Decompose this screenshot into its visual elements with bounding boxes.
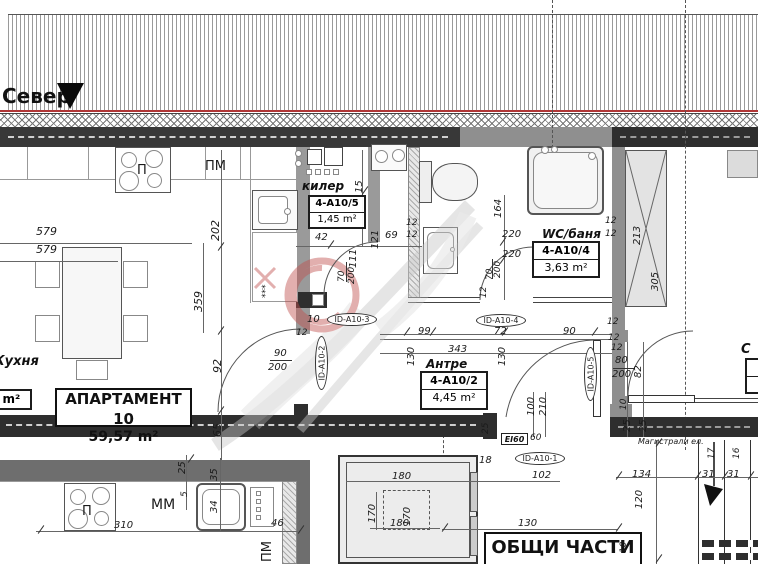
dimension-label: 220 xyxy=(502,230,521,240)
sink-bowl xyxy=(202,489,240,525)
dimension-label: 12 xyxy=(406,231,417,240)
room-id: 4-А10/4 xyxy=(534,243,598,260)
wall xyxy=(612,147,625,437)
door-leaf xyxy=(628,395,695,403)
faucet xyxy=(284,208,291,215)
slab xyxy=(727,150,758,178)
faucet xyxy=(450,247,455,252)
washer-symbol xyxy=(324,147,343,166)
burner xyxy=(92,487,110,505)
counter-divider xyxy=(27,147,28,180)
chair xyxy=(76,360,108,380)
basin-bowl xyxy=(392,149,405,162)
dim-line xyxy=(470,481,560,482)
apartment-title: АПАРТАМЕНТ 10 xyxy=(57,390,190,429)
dimension-label: 120 xyxy=(635,490,645,509)
drain xyxy=(588,152,596,160)
wall xyxy=(297,460,310,564)
counter-divider xyxy=(240,147,241,180)
dim-line xyxy=(656,440,657,564)
dim-line xyxy=(296,246,422,247)
dim-line xyxy=(203,243,204,333)
dimension-label: 343 xyxy=(448,345,467,355)
wall xyxy=(282,481,297,564)
dimension-label: 170 xyxy=(368,504,378,523)
dimension-label: 15 xyxy=(355,180,365,193)
dimension-label: 200 xyxy=(268,363,287,373)
basin-bowl xyxy=(375,150,388,163)
dimension-label: 12 xyxy=(611,344,622,353)
washer-symbol xyxy=(307,149,322,165)
appliance-label: П xyxy=(82,505,92,518)
common-area-title: ОБЩИ ЧАСТИ xyxy=(486,534,640,561)
dimension-label: 16 xyxy=(733,448,742,459)
dimension-label: 10 xyxy=(620,542,629,553)
room-id: 4-А10/5 xyxy=(310,197,364,213)
knob xyxy=(295,150,302,157)
toilet-bowl xyxy=(432,163,478,201)
dimension-label: 164 xyxy=(494,199,504,218)
counter-divider xyxy=(88,147,89,180)
appliance-label: ПМ xyxy=(261,541,274,562)
dim-tick xyxy=(38,525,45,534)
mixer xyxy=(551,146,558,153)
dimension-label: 69 xyxy=(385,231,398,241)
dimension-label: 111 xyxy=(349,249,359,268)
door-id-tag: ID-А10-2 xyxy=(315,336,328,390)
wall xyxy=(0,460,300,481)
dimension-label: 180 xyxy=(392,472,411,482)
dim-line xyxy=(0,243,192,244)
room-name-kiler: килер xyxy=(302,180,344,192)
dimension-label: 17 xyxy=(708,448,717,459)
red-reference-line xyxy=(0,110,758,112)
dim-line xyxy=(0,261,118,262)
dimension-label: 82 xyxy=(634,365,644,378)
dimension-label: 60 xyxy=(530,434,541,443)
dining-table xyxy=(62,247,122,359)
stair-tread xyxy=(702,540,758,547)
burner xyxy=(119,171,139,191)
room-box-antre: 4-А10/2 4,45 m² xyxy=(420,371,488,410)
shower-inner xyxy=(533,152,598,209)
wall xyxy=(695,398,758,403)
dimension-label: 213 xyxy=(633,226,643,245)
shelf-dot xyxy=(324,169,330,175)
dimension-label: 134 xyxy=(632,470,651,480)
dimension-label: 130 xyxy=(407,347,417,366)
dimension-label: 35 xyxy=(210,468,220,481)
dimension-label: 25 xyxy=(178,461,188,474)
dimension-label: 210 xyxy=(539,397,549,416)
north-label: Север xyxy=(2,86,71,106)
counter-divider xyxy=(250,147,251,303)
dimension-label: 130 xyxy=(518,519,537,529)
dimension-label: 12 xyxy=(605,217,616,226)
toilet-cistern xyxy=(419,161,432,203)
dimension-label: 100 xyxy=(527,397,537,416)
dimension-label: 90 xyxy=(563,327,576,337)
door-id-tag: ID-А10-3 xyxy=(327,313,377,326)
dimension-label: Магистрали ел. xyxy=(638,438,704,446)
shelf-dot xyxy=(256,499,261,504)
room-area: 1,45 m² xyxy=(310,213,364,228)
door-jamb xyxy=(312,294,324,306)
shelf-dot xyxy=(306,169,312,175)
dimension-label: 202 xyxy=(210,220,221,241)
dimension-label: 65 xyxy=(212,423,223,437)
cabinet-symbol xyxy=(252,232,298,302)
appliance-label: *** xyxy=(262,285,271,299)
dimension-label: 102 xyxy=(532,471,551,481)
dimension-label: 31 xyxy=(727,470,740,480)
dimension-label: 42 xyxy=(315,233,328,243)
dimension-label: 90 xyxy=(274,349,287,359)
dimension-label: 10 xyxy=(620,399,629,410)
door-id-tag: ID-А10-1 xyxy=(515,452,565,465)
dimension-label: 200 xyxy=(612,370,631,380)
room-name-antre: Антре xyxy=(426,358,467,370)
dimension-label: 310 xyxy=(114,521,133,531)
dimension-label: 12 xyxy=(296,329,307,338)
dimension-label: 25 xyxy=(482,423,491,434)
chair xyxy=(35,261,60,288)
counter-edge xyxy=(0,481,282,482)
dimension-label: 18 xyxy=(479,456,492,466)
dimension-label: 99 xyxy=(418,327,431,337)
burner xyxy=(147,173,162,188)
axis-line xyxy=(685,0,686,450)
dimension-label: 220 xyxy=(502,250,521,260)
dimension-label: 46 xyxy=(271,519,284,529)
axis-line xyxy=(552,0,553,148)
burner xyxy=(121,152,137,168)
terrace-hatch-area xyxy=(8,14,758,111)
apartment-box: АПАРТАМЕНТ 10 59,57 m² xyxy=(55,388,192,427)
dimension-label: 25 xyxy=(623,419,633,432)
dimension-label: 92 xyxy=(212,359,223,373)
chair xyxy=(35,315,60,342)
room-name-kitchen: Кухня xyxy=(0,355,39,368)
dimension-label: 5 xyxy=(181,491,190,497)
floor-plan: Север xyxy=(0,0,758,564)
room-area: 3,63 m² xyxy=(534,260,598,276)
dim-line xyxy=(36,531,298,532)
burner xyxy=(145,150,163,168)
wall-line xyxy=(380,339,612,340)
knob xyxy=(295,160,302,167)
dimension-label: 200 xyxy=(348,267,357,284)
kitchen-area-box: 35 m² xyxy=(0,389,32,410)
stair-tread xyxy=(702,553,758,560)
appliance-label: ММ xyxy=(151,498,175,512)
door-jamb xyxy=(294,404,308,415)
wall-centerline xyxy=(8,136,448,138)
shelf-dot xyxy=(315,169,321,175)
mixer xyxy=(541,146,549,154)
dimension-label: 25 xyxy=(639,419,649,432)
dim-tick xyxy=(748,471,755,480)
appliance-label: ПМ xyxy=(205,160,226,173)
kitchen-area: 35 m² xyxy=(0,391,30,408)
dimension-label: 12 xyxy=(406,219,417,228)
wall xyxy=(460,127,612,147)
elevator-door xyxy=(470,516,478,556)
apartment-area: 59,57 m² xyxy=(57,429,190,445)
dimension-label: 12 xyxy=(607,318,618,327)
dim-tick xyxy=(616,471,623,480)
room-id: 4-А10/2 xyxy=(422,373,486,390)
shelf-dot xyxy=(256,515,261,520)
wall xyxy=(408,297,480,303)
insulation-band xyxy=(0,113,758,128)
dimension-label: 10 xyxy=(307,315,320,325)
dimension-label: 70 xyxy=(338,271,347,282)
room-name-c: С xyxy=(741,343,751,356)
dim-line xyxy=(504,195,505,300)
dimension-label: 305 xyxy=(651,272,661,291)
dimension-label: 579 xyxy=(36,226,57,237)
burner xyxy=(94,511,109,526)
dimension-label: 80 xyxy=(615,356,628,366)
room-box-kiler: 4-А10/5 1,45 m² xyxy=(308,195,366,229)
dimension-label: 579 xyxy=(36,244,57,255)
room-area: 4,45 m² xyxy=(422,390,486,406)
chair xyxy=(123,261,148,288)
burner xyxy=(70,489,86,505)
room-name-wc: WC/баня xyxy=(542,228,601,240)
dimension-label: 200 xyxy=(494,261,503,278)
fire-door-tag: EI60 xyxy=(501,433,528,445)
dimension-label: 130 xyxy=(498,347,508,366)
dimension-label: 12 xyxy=(605,230,616,239)
dimension-label: 72 xyxy=(494,327,507,337)
dim-line xyxy=(220,458,221,532)
elevator-door xyxy=(470,472,478,512)
dimension-label: 34 xyxy=(210,500,220,513)
dim-line xyxy=(221,150,222,460)
room-box-c xyxy=(745,358,758,394)
appliance-label: П xyxy=(137,164,147,177)
dim-tick xyxy=(328,240,335,249)
dimension-label: 70 xyxy=(486,269,495,280)
dimension-label: 180 xyxy=(390,519,409,529)
room-box-wc: 4-А10/4 3,63 m² xyxy=(532,241,600,278)
fraction-bar xyxy=(270,360,292,361)
wall xyxy=(533,297,612,303)
dimension-label: 121 xyxy=(371,230,381,249)
shelf-dot xyxy=(256,491,261,496)
stair-line xyxy=(698,440,699,564)
shelf-dot xyxy=(256,507,261,512)
dimension-label: 31 xyxy=(702,470,715,480)
door-id-tag: ID-А10-5 xyxy=(584,347,597,401)
dim-tick xyxy=(616,523,623,532)
shelf-dot xyxy=(333,169,339,175)
dim-line xyxy=(442,529,618,530)
dimension-label: 12 xyxy=(480,287,489,298)
dimension-label: 359 xyxy=(193,291,204,312)
chair xyxy=(123,315,148,342)
dimension-label: 12 xyxy=(608,334,619,343)
